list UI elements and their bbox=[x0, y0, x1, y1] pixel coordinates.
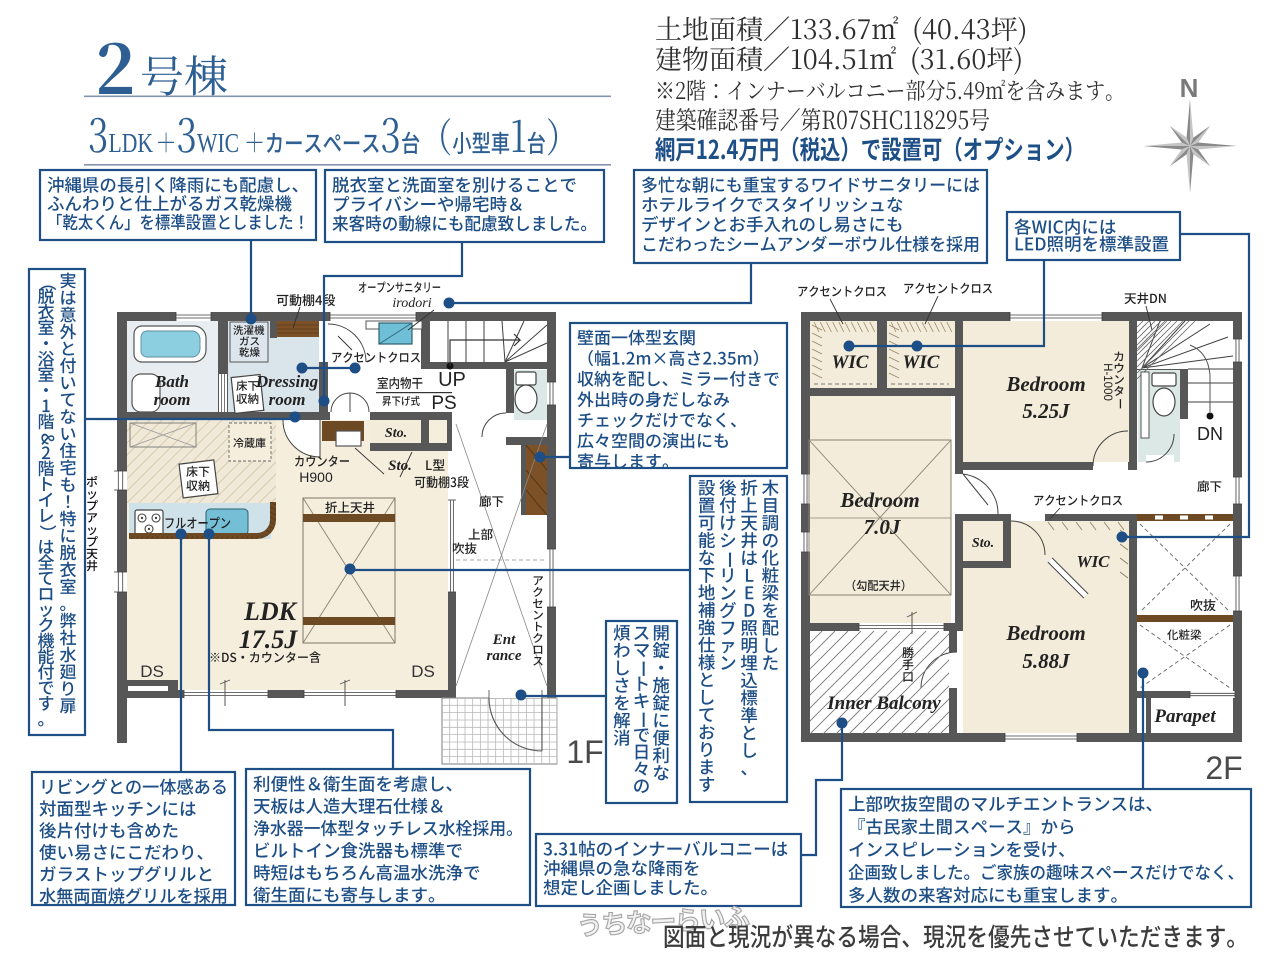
svg-text:rance: rance bbox=[487, 648, 522, 664]
svg-text:Inner Balcony: Inner Balcony bbox=[826, 693, 941, 714]
svg-text:17.5J: 17.5J bbox=[239, 625, 299, 654]
svg-text:WIC: WIC bbox=[832, 352, 869, 373]
svg-text:Bedroom: Bedroom bbox=[1005, 372, 1085, 396]
svg-text:7.0J: 7.0J bbox=[864, 515, 902, 539]
svg-text:Ent: Ent bbox=[492, 632, 516, 648]
svg-text:Bedroom: Bedroom bbox=[839, 488, 919, 512]
svg-text:DS: DS bbox=[411, 662, 435, 681]
svg-text:DS: DS bbox=[140, 662, 164, 681]
svg-text:1F: 1F bbox=[566, 734, 603, 770]
svg-text:N: N bbox=[1180, 73, 1199, 103]
svg-text:5.88J: 5.88J bbox=[1022, 649, 1071, 673]
svg-text:LDK: LDK bbox=[243, 597, 298, 626]
svg-text:2F: 2F bbox=[1205, 750, 1242, 786]
svg-text:Sto.: Sto. bbox=[385, 426, 407, 441]
svg-text:Bath: Bath bbox=[154, 372, 189, 391]
svg-text:Parapet: Parapet bbox=[1153, 706, 1216, 727]
svg-text:WIC: WIC bbox=[1076, 552, 1110, 571]
svg-text:H-1000: H-1000 bbox=[1101, 363, 1113, 401]
svg-text:Sto.: Sto. bbox=[972, 536, 994, 551]
svg-text:LDK: LDK bbox=[109, 129, 154, 159]
svg-text:room: room bbox=[154, 390, 191, 409]
svg-text:room: room bbox=[269, 390, 306, 409]
svg-text:WIC: WIC bbox=[197, 129, 239, 159]
svg-text:Bedroom: Bedroom bbox=[1005, 621, 1085, 645]
svg-text:5.25J: 5.25J bbox=[1022, 399, 1071, 423]
svg-text:UP: UP bbox=[438, 369, 466, 391]
svg-text:Dressing: Dressing bbox=[255, 372, 319, 391]
svg-text:H900: H900 bbox=[299, 469, 333, 485]
svg-text:WIC: WIC bbox=[903, 352, 940, 373]
svg-text:PS: PS bbox=[431, 393, 456, 414]
svg-text:irodori: irodori bbox=[392, 296, 431, 311]
svg-text:DN: DN bbox=[1197, 424, 1223, 444]
